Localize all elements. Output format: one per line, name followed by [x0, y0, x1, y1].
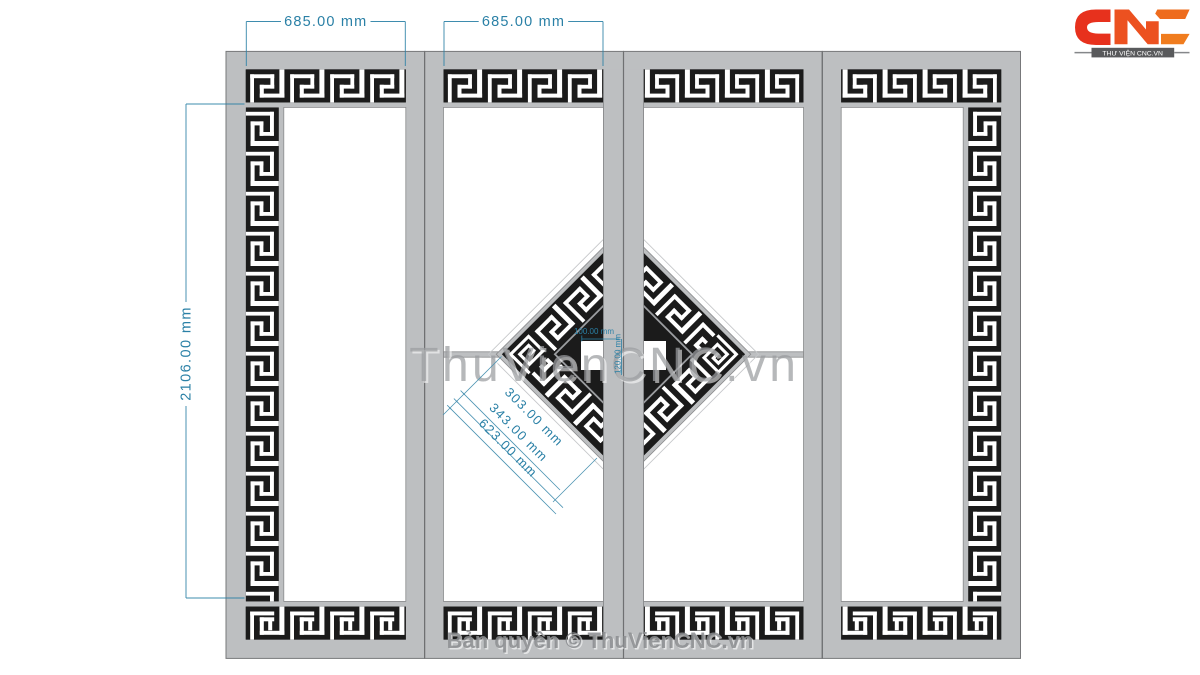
svg-text:2106.00 mm: 2106.00 mm: [179, 306, 195, 401]
svg-text:685.00 mm: 685.00 mm: [284, 14, 367, 30]
svg-text:Bản quyền © ThuVienCNC.vn: Bản quyền © ThuVienCNC.vn: [447, 628, 754, 653]
svg-text:100.00 mm: 100.00 mm: [574, 327, 614, 336]
svg-text:ThuVienCNC.vn: ThuVienCNC.vn: [409, 339, 799, 392]
svg-text:120.00 mm: 120.00 mm: [614, 334, 623, 374]
svg-text:THƯ VIỆN CNC.VN: THƯ VIỆN CNC.VN: [1102, 49, 1163, 58]
svg-text:685.00 mm: 685.00 mm: [482, 14, 565, 30]
